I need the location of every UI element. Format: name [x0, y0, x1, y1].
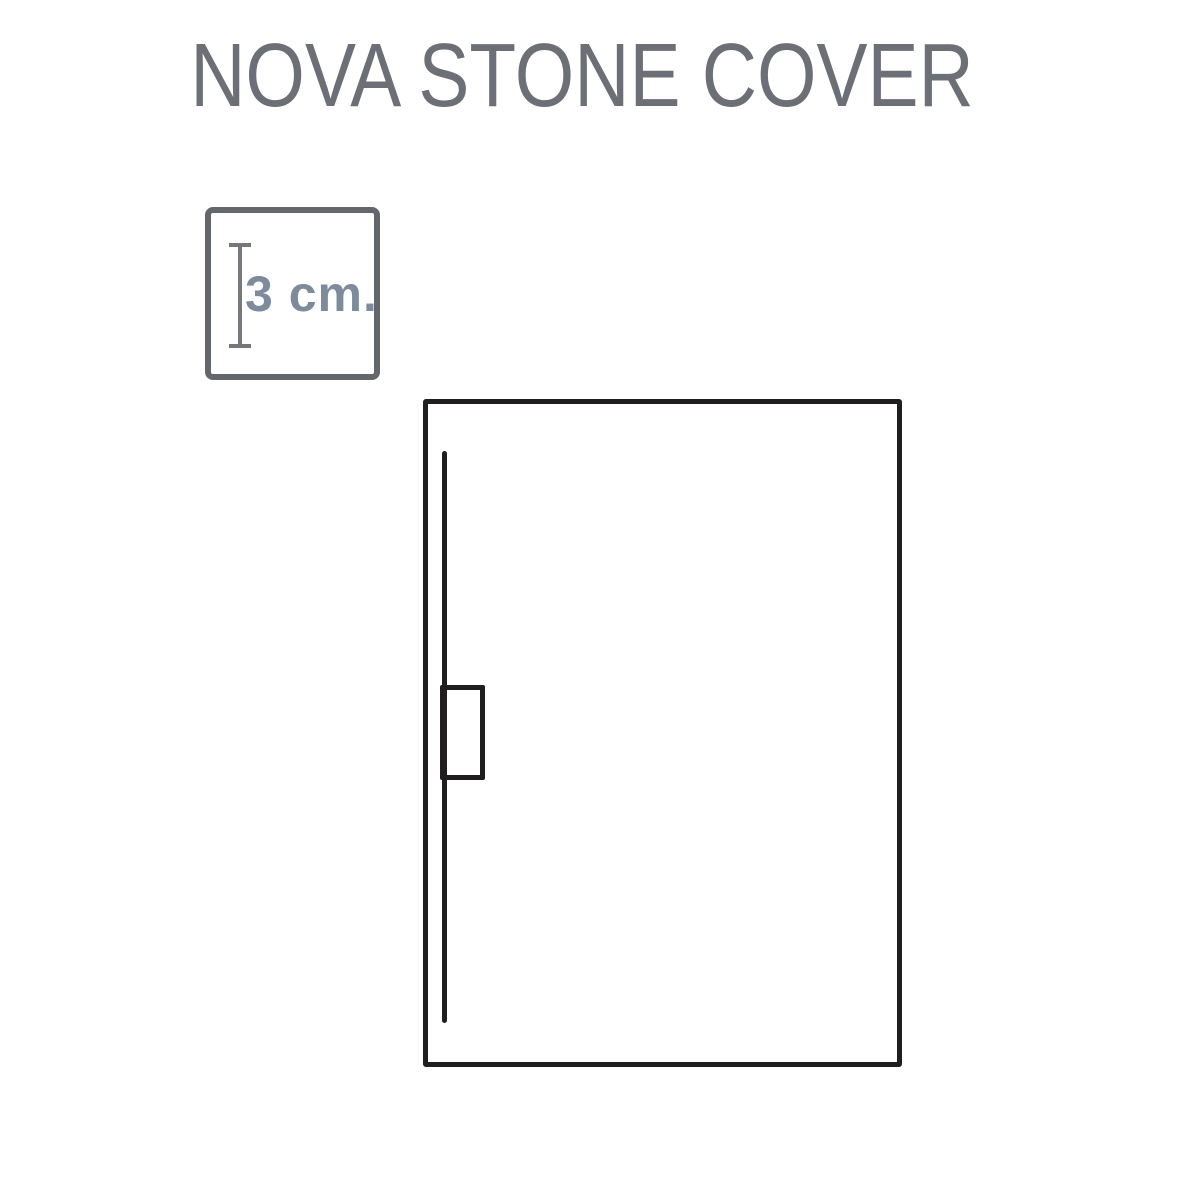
product-diagram-canvas: NOVA STONE COVER 3 cm.	[0, 0, 1200, 1200]
thickness-badge: 3 cm.	[205, 207, 380, 380]
drain-outlet-box	[440, 685, 485, 780]
page-title: NOVA STONE COVER	[87, 31, 1076, 121]
tray-outline	[423, 399, 902, 1067]
measure-bar	[238, 245, 242, 346]
thickness-label: 3 cm.	[245, 267, 378, 321]
measure-bottom-cap	[229, 344, 251, 348]
